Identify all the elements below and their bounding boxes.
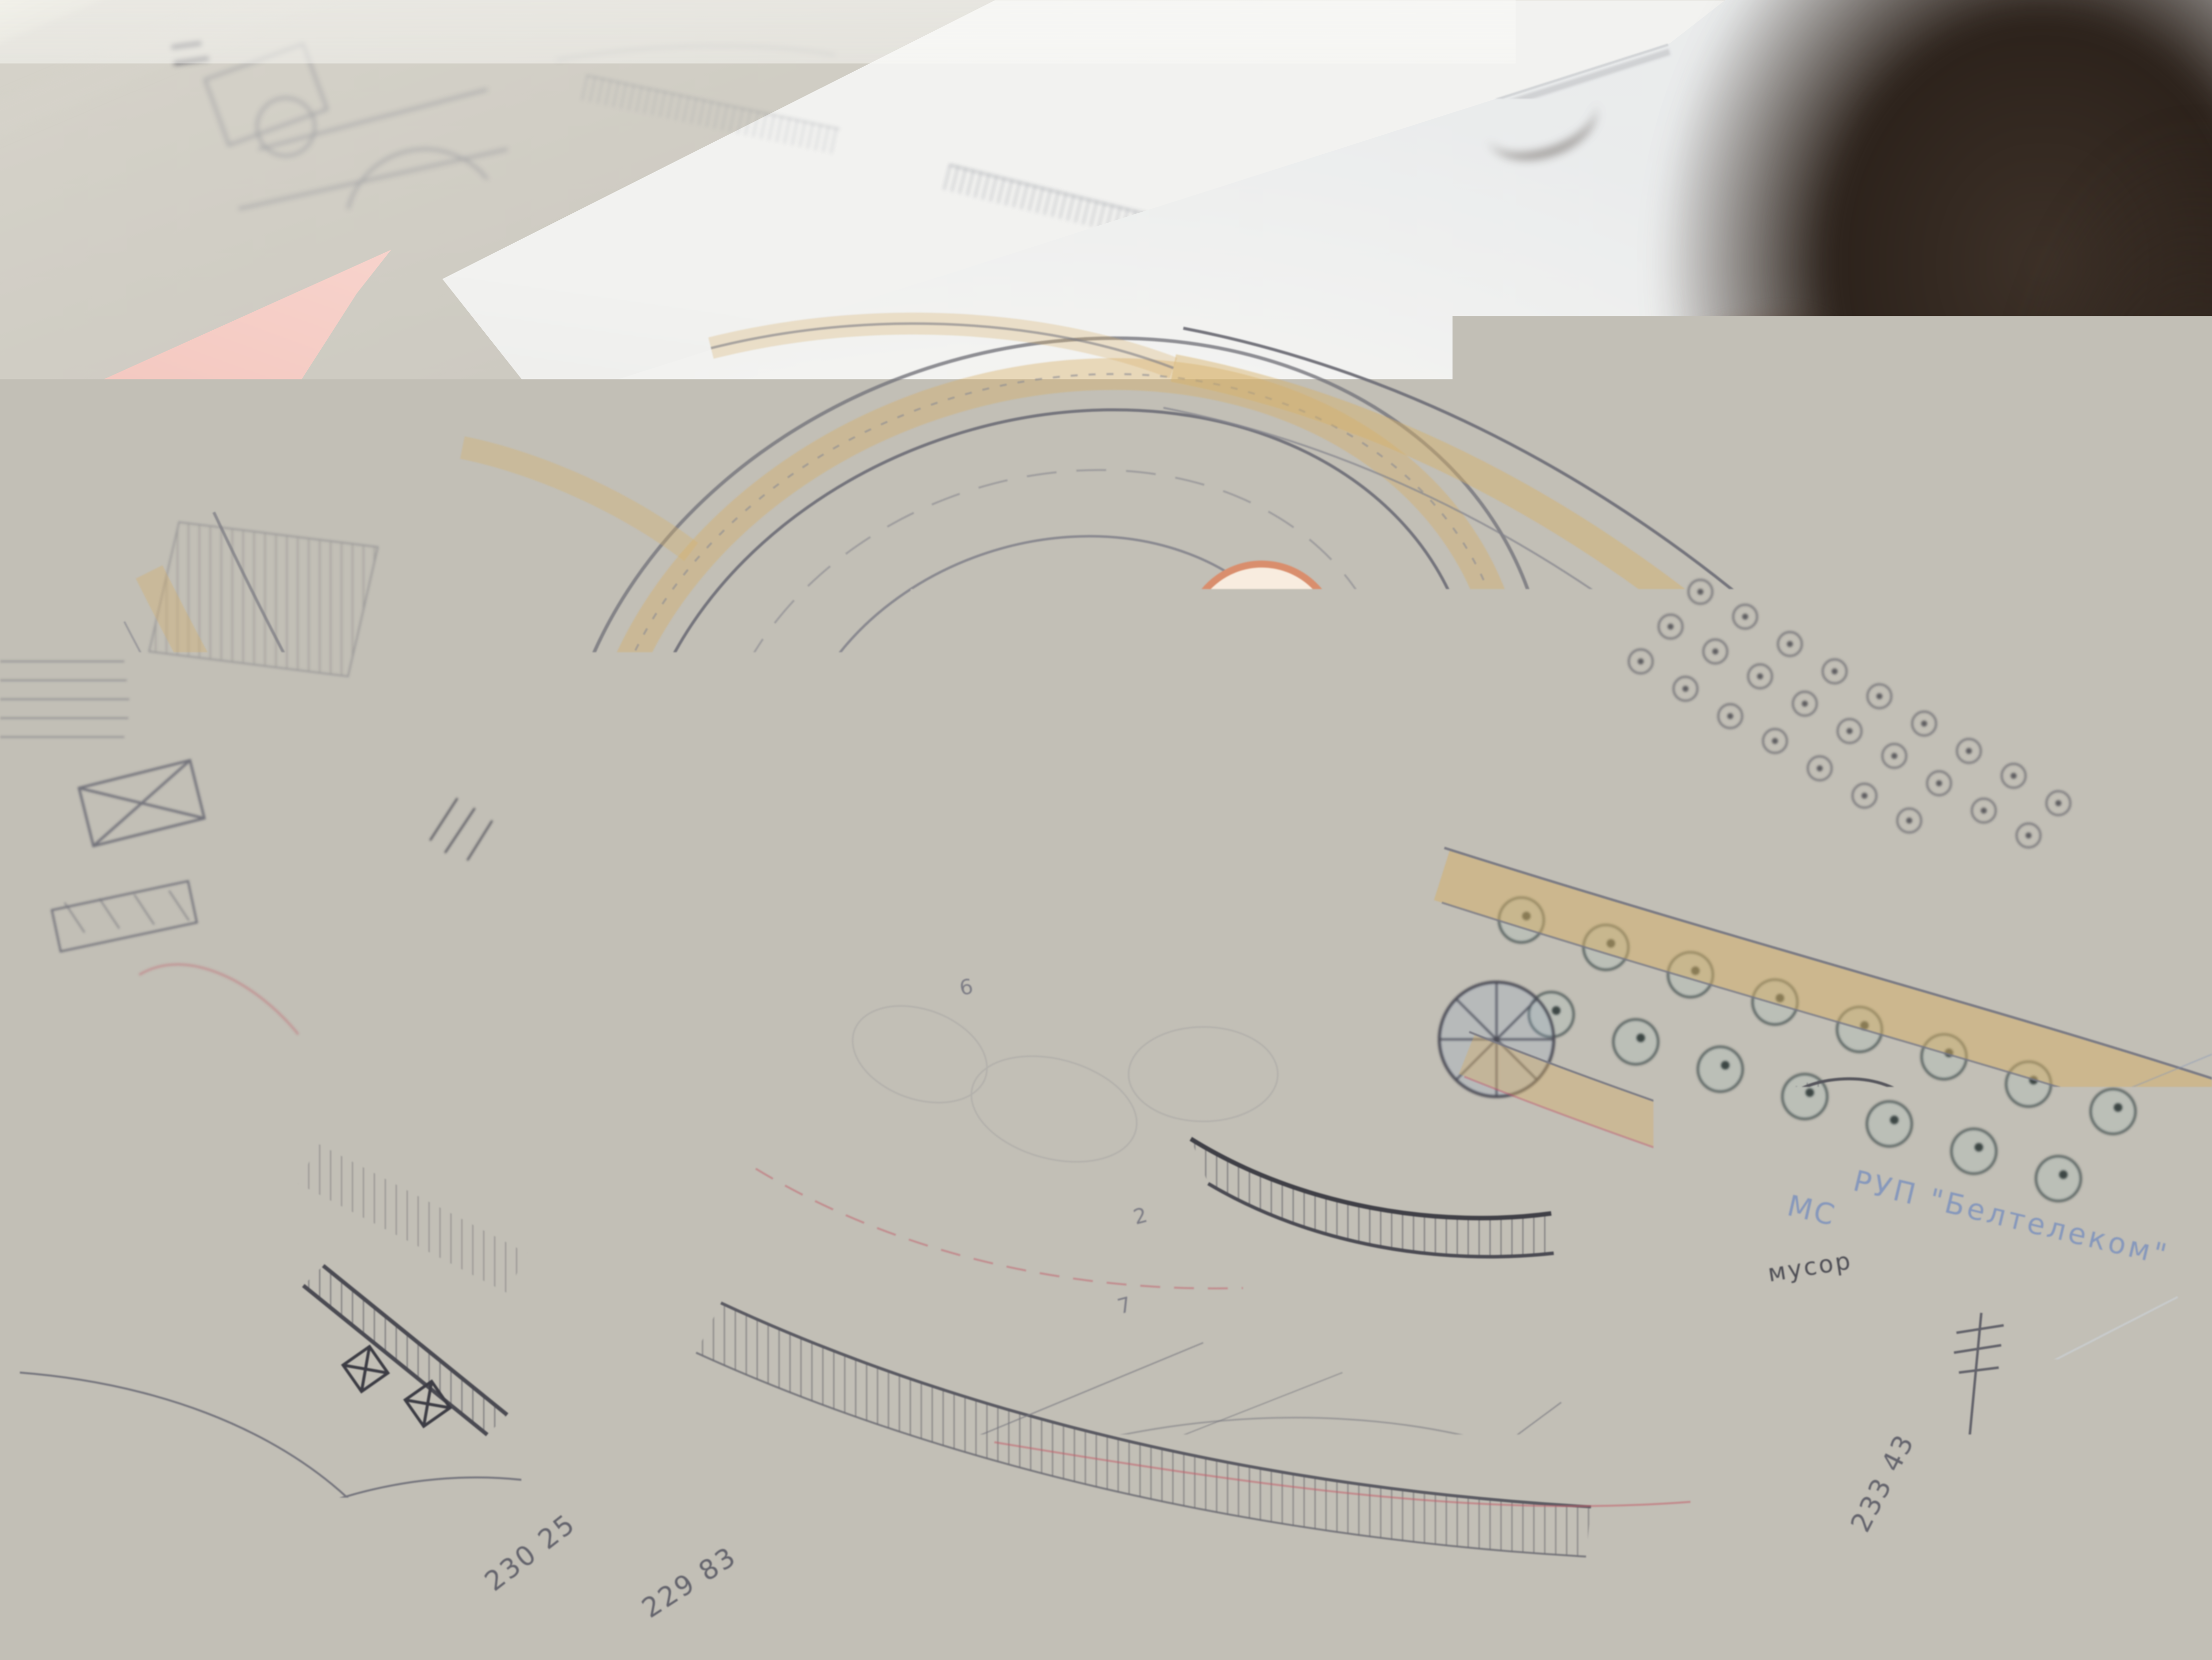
hatched-walkway [1191,1139,1554,1257]
ruler-number: 17 [1295,954,1366,1024]
ruler-number: 19 [1190,1056,1261,1127]
ruler-number: 11 [1607,646,1679,717]
ruler-number: 20 [1139,1107,1210,1178]
photo-stage: 230 25 229 83 230 45 233 43 мусор МС РУП… [0,0,2212,1660]
ruler-number: 15 [1399,851,1470,922]
ruler-number: 16 [1347,903,1418,973]
ruler-number: 13 [1504,749,1575,820]
ruler-brand: СТАММ [1191,1018,1272,1099]
ruler-number: 12 [1555,698,1626,768]
ruler-number: 14 [1451,800,1522,871]
ruler-number: 18 [1242,1005,1314,1076]
left-arm-lower [0,1412,348,1660]
